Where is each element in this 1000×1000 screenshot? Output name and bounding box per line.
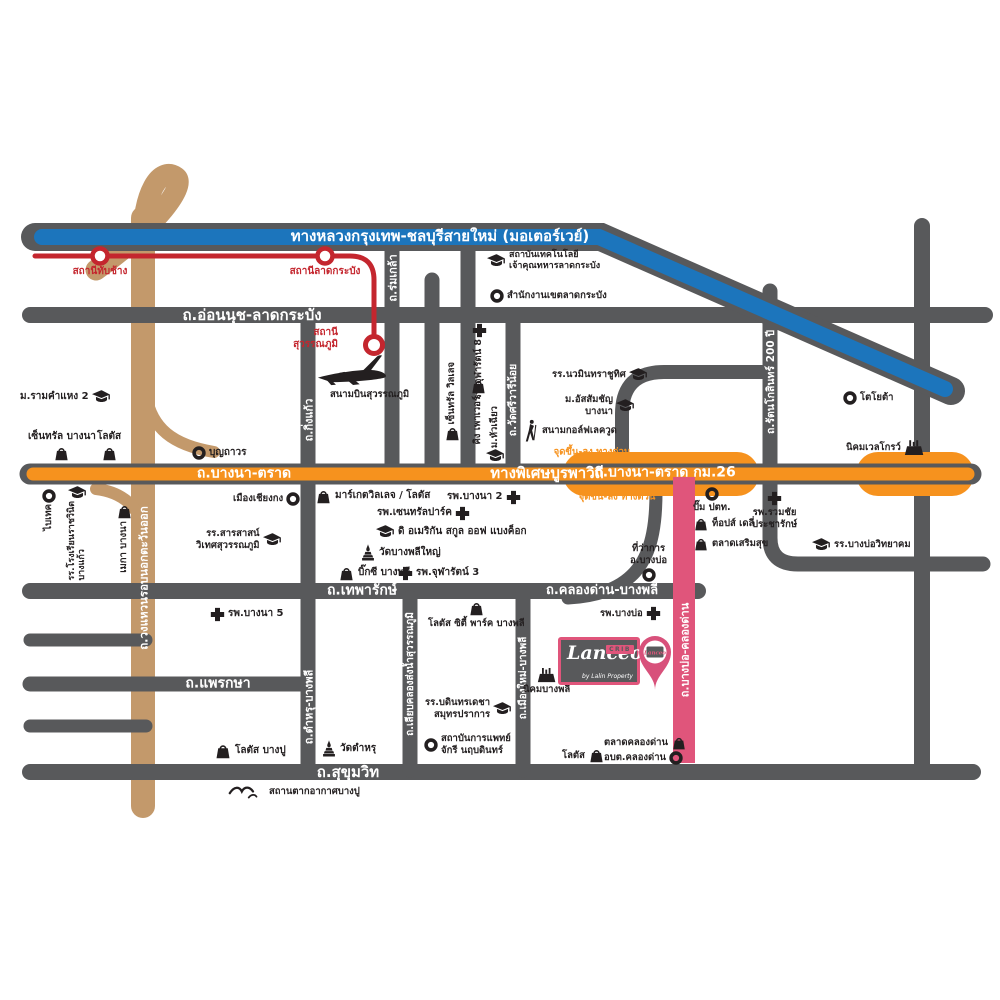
ramp-note-lower: จุดขึ้น-ลง ทางด่วน bbox=[579, 490, 656, 505]
lanceo-crib-tag: CRIB bbox=[606, 645, 634, 654]
poi-talad-soemsuk: ตลาดเสริมสุข bbox=[693, 536, 768, 552]
poi-bodindecha: รร.บดินทรเดชาสมุทรปราการ bbox=[425, 697, 512, 721]
graduation-cap-icon bbox=[616, 399, 635, 413]
graduation-cap-icon bbox=[263, 533, 282, 547]
map-canvas: ทางหลวงกรุงเทพ-ชลบุรีสายใหม่ (มอเตอร์เวย… bbox=[0, 0, 1000, 1000]
graduation-cap-icon bbox=[812, 538, 831, 552]
poi-lotus: โลตัส bbox=[97, 431, 121, 462]
poi-central-bangna: เซ็นทรัล บางนา bbox=[28, 431, 96, 462]
poi-market-village: มาร์เกตวิลเลจ / โลตัส bbox=[315, 488, 430, 505]
station-thapchang-label: สถานีทับช้าง bbox=[73, 266, 128, 278]
poi-bangna2: รพ.บางนา 2 bbox=[447, 490, 521, 505]
place-ring-icon bbox=[843, 391, 857, 405]
poi-king-power: คิง เพาเวอร์ bbox=[470, 378, 487, 445]
station-suvarnabhumi-label: สถานี สุวรรณภูมิ bbox=[293, 327, 338, 351]
label-bangna-trat: ถ.บางนา-ตราด bbox=[197, 466, 291, 483]
poi-mega-bangna: เมกา บางนา bbox=[116, 503, 133, 573]
lanceo-logo: Lanceo CRIB by Lalin Property bbox=[558, 637, 640, 685]
place-ring-icon bbox=[642, 568, 656, 582]
poi-bitec: ไบเทค bbox=[42, 489, 56, 531]
poi-chiangkong: เมืองเชียงกง bbox=[233, 492, 300, 506]
label-rattanakosin200: ถ.รัตนโกสินทร์ 200 ปี bbox=[766, 330, 777, 434]
shopping-bag-icon bbox=[315, 488, 332, 505]
poi-ruamchai-hospital: รพ.รวมชัยประชารักษ์ bbox=[752, 491, 797, 531]
label-motorway: ทางหลวงกรุงเทพ-ชลบุรีสายใหม่ (มอเตอร์เวย… bbox=[291, 227, 590, 245]
label-kingkaew: ถ.กิ่งแก้ว bbox=[304, 399, 315, 442]
shopping-bag-icon bbox=[588, 747, 605, 764]
place-ring-icon bbox=[705, 487, 719, 501]
temple-icon bbox=[360, 544, 376, 562]
graduation-cap-icon bbox=[629, 368, 648, 382]
golfer-icon bbox=[522, 419, 539, 442]
label-romklao: ถ.ร่มเกล้า bbox=[388, 254, 399, 301]
poi-chakri-medical: สถาบันการแพทย์จักรี นฤบดินทร์ bbox=[424, 733, 511, 757]
station-latkrabang-label: สถานีลาดกระบัง bbox=[290, 266, 361, 278]
place-ring-icon bbox=[286, 492, 300, 506]
poi-ptt-station: ปั๊ม ปตท. bbox=[693, 487, 731, 514]
poi-obt-khlongdan: อบต.คลองด่าน bbox=[604, 751, 683, 765]
poi-lakewood: สนามกอล์ฟเลควูด bbox=[522, 419, 617, 442]
poi-district-office: สำนักงานเขตลาดกระบัง bbox=[490, 289, 607, 303]
shopping-bag-icon bbox=[693, 516, 709, 532]
place-ring-icon bbox=[42, 489, 56, 503]
graduation-cap-icon bbox=[376, 525, 395, 539]
airplane-icon bbox=[316, 350, 392, 390]
graduation-cap-icon bbox=[486, 449, 505, 463]
poi-assumption: ม.อัสสัมชัญบางนา bbox=[565, 394, 635, 418]
station-latkrabang-marker bbox=[318, 249, 333, 264]
shopping-bag-icon bbox=[101, 445, 118, 462]
poi-bangna5: รพ.บางนา 5 bbox=[210, 607, 284, 622]
shopping-bag-icon bbox=[444, 425, 461, 442]
poi-bangbo-hospital: รพ.บางบ่อ bbox=[600, 606, 661, 621]
label-burapha: ทางพิเศษบูรพาวิถี bbox=[490, 464, 603, 482]
poi-huachiew: ม.หัวเฉียว bbox=[486, 406, 505, 463]
shopping-bag-icon bbox=[693, 536, 709, 552]
shopping-bag-icon bbox=[470, 378, 487, 395]
hospital-cross-icon bbox=[455, 506, 470, 521]
poi-toyota: โตโยต้า bbox=[843, 391, 893, 405]
poi-kmitl: สถาบันเทคโนโลยีเจ้าคุณทหารลาดกระบัง bbox=[487, 250, 600, 273]
hospital-cross-icon bbox=[646, 606, 661, 621]
label-watsriwarinoi: ถ.วัดศรีวารีน้อย bbox=[508, 364, 519, 436]
place-ring-icon bbox=[192, 446, 206, 460]
airport-label: สนามบินสุวรรณภูมิ bbox=[330, 389, 409, 401]
poi-central-village: เซ็นทรัล วิลเลจ bbox=[444, 362, 461, 442]
poi-american-school: ดิ อเมริกัน สกูล ออฟ แบงค็อก bbox=[376, 525, 527, 539]
poi-wellgrow: นิคมเวลโกรว์ bbox=[846, 440, 925, 456]
hospital-cross-icon bbox=[398, 566, 413, 581]
project-location-pin: Lanceo bbox=[638, 634, 672, 692]
poi-chularat3: รพ.จุฬารัตน์ 3 bbox=[398, 566, 479, 581]
ring-ramp-north bbox=[146, 396, 214, 452]
poi-bangbo-district-office: ที่ว่าการอ.บางบ่อ bbox=[630, 543, 667, 582]
graduation-cap-icon bbox=[92, 390, 111, 404]
shopping-bag-icon bbox=[468, 600, 485, 617]
place-ring-icon bbox=[490, 289, 504, 303]
label-sukhumvit: ถ.สุขุมวิท bbox=[317, 763, 379, 781]
graduation-cap-icon bbox=[68, 486, 87, 500]
factory-icon bbox=[904, 440, 925, 456]
graduation-cap-icon bbox=[493, 702, 512, 716]
label-tamru-bangphli: ถ.ตำหรุ-บางพลี bbox=[304, 670, 315, 744]
graduation-cap-icon bbox=[487, 254, 506, 268]
label-phraeksa: ถ.แพรกษา bbox=[185, 676, 250, 693]
shopping-bag-icon bbox=[53, 445, 70, 462]
seagulls-icon bbox=[228, 782, 266, 801]
place-ring-icon bbox=[669, 751, 683, 765]
poi-wat-bangphli-yai: วัดบางพลีใหญ่ bbox=[360, 544, 441, 562]
poi-boonthavorn: บุญถาวร bbox=[192, 446, 247, 460]
label-liabkhlong: ถ.เลียบคลองส่งน้ำสุวรรณภูมิ bbox=[406, 612, 416, 736]
ramp-note-upper: จุดขึ้น-ลง ทางด่วน bbox=[554, 445, 631, 460]
poi-tops-daily: ท็อปส์ เดลี่ bbox=[693, 516, 754, 532]
hospital-cross-icon bbox=[472, 323, 487, 338]
svg-text:Lanceo: Lanceo bbox=[643, 651, 666, 657]
label-outer-ring: ถ.วงแหวนรอบนอกตะวันออก bbox=[138, 506, 150, 650]
shopping-bag-icon bbox=[116, 503, 133, 520]
poi-nawamin: รร.นวมินทราชูทิศ bbox=[552, 368, 648, 382]
poi-ratchawinit: รร.โรงเรียนราชวินิตบางแก้ว bbox=[68, 486, 88, 581]
label-thepharak: ถ.เทพารักษ์ bbox=[327, 583, 397, 600]
lanceo-byline: by Lalin Property bbox=[582, 673, 633, 680]
poi-lotus-khlongdan: โลตัส bbox=[562, 747, 605, 764]
hospital-cross-icon bbox=[506, 490, 521, 505]
place-ring-icon bbox=[424, 738, 438, 752]
shopping-bag-icon bbox=[338, 565, 355, 582]
poi-central-park-hospital: รพ.เซนทรัลปาร์ค bbox=[377, 506, 470, 521]
station-thapchang-marker bbox=[93, 249, 108, 264]
poi-wat-tamru: วัดตำหรุ bbox=[321, 740, 376, 758]
poi-bangpu-resort: สถานตากอากาศบางปู bbox=[228, 782, 360, 801]
factory-icon bbox=[537, 668, 557, 683]
label-bangbo-khlongdan: ถ.บางบ่อ-คลองด่าน bbox=[680, 603, 691, 697]
shopping-bag-icon bbox=[214, 742, 232, 760]
shopping-bag-icon bbox=[671, 735, 687, 751]
poi-lotus-city-park: โลตัส ซิตี้ พาร์ค บางพลี bbox=[428, 600, 525, 630]
poi-ram2: ม.รามคำแหง 2 bbox=[20, 390, 111, 404]
label-onnut: ถ.อ่อนนุช-ลาดกระบัง bbox=[182, 306, 321, 324]
hospital-cross-icon bbox=[767, 491, 782, 506]
poi-talad-khlongdan: ตลาดคลองด่าน bbox=[604, 735, 687, 751]
poi-lotus-bangpu: โลตัส บางปู bbox=[214, 742, 286, 760]
label-khlongdan-bangphli: ถ.คลองด่าน-บางพลี bbox=[546, 583, 658, 599]
hospital-cross-icon bbox=[210, 607, 225, 622]
poi-bangbo-wittayakom: รร.บางบ่อวิทยาคม bbox=[812, 538, 911, 552]
temple-icon bbox=[321, 740, 337, 758]
poi-sarasas: รร.สารสาสน์วิเทศสุวรรณภูมิ bbox=[196, 528, 282, 552]
label-bangna-trat-km26: ถ.บางนา-ตราด กม.26 bbox=[594, 465, 736, 482]
